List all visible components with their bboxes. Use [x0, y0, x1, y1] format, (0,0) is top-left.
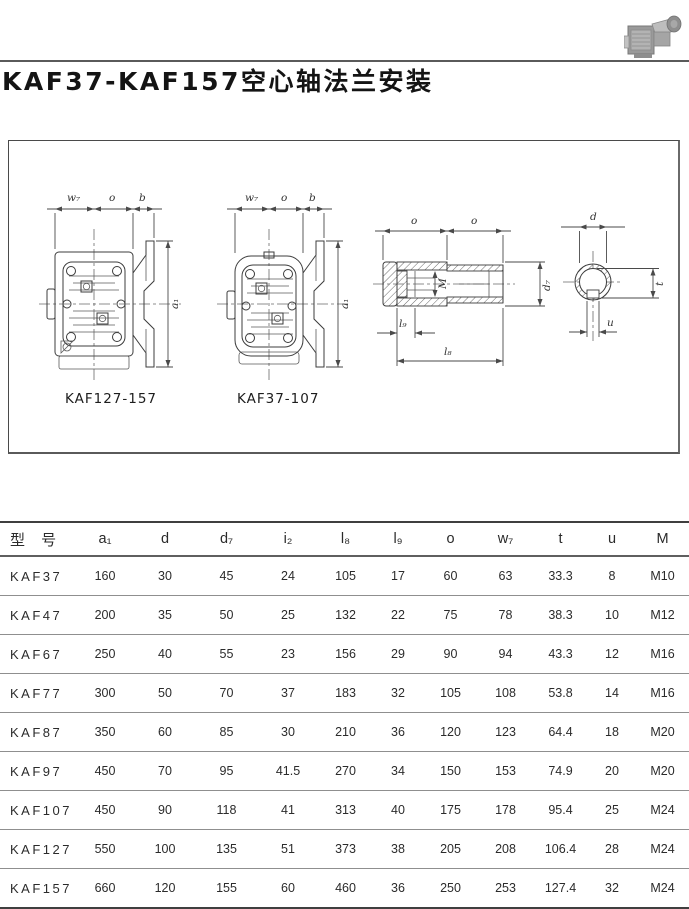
- cell-l9: 36: [373, 869, 423, 909]
- cell-w7: 153: [478, 752, 533, 791]
- cell-o: 60: [423, 556, 478, 596]
- cell-d: 70: [135, 752, 195, 791]
- cell-l8: 373: [318, 830, 373, 869]
- cell-t: 127.4: [533, 869, 588, 909]
- dim-label-o: o: [109, 192, 115, 204]
- table-row: KAF77 300 50 70 37 183 32 105 108 53.8 1…: [0, 674, 689, 713]
- cell-w7: 123: [478, 713, 533, 752]
- dim-label-a1: a₁: [169, 299, 181, 309]
- table-header-row: 型 号 a₁ d d₇ i₂ l₈ l₉ o w₇ t u M: [0, 522, 689, 556]
- cell-u: 25: [588, 791, 636, 830]
- cell-w7: 108: [478, 674, 533, 713]
- cell-u: 12: [588, 635, 636, 674]
- cell-t: 106.4: [533, 830, 588, 869]
- dim-label-l8: l₈: [444, 346, 452, 358]
- column-header-i2: i₂: [258, 522, 318, 556]
- cell-o: 250: [423, 869, 478, 909]
- table-row: KAF127 550 100 135 51 373 38 205 208 106…: [0, 830, 689, 869]
- table-row: KAF87 350 60 85 30 210 36 120 123 64.4 1…: [0, 713, 689, 752]
- cell-a1: 450: [75, 752, 135, 791]
- cell-M: M24: [636, 830, 689, 869]
- cell-w7: 178: [478, 791, 533, 830]
- cell-l8: 156: [318, 635, 373, 674]
- column-header-l8: l₈: [318, 522, 373, 556]
- dim-label-a1: a₁: [339, 299, 351, 309]
- cell-o: 150: [423, 752, 478, 791]
- dim-label-b: b: [139, 192, 146, 204]
- cell-d: 120: [135, 869, 195, 909]
- dim-label-w7: w₇: [67, 192, 81, 204]
- cell-a1: 550: [75, 830, 135, 869]
- caption-right: KAF37-107: [237, 391, 319, 407]
- cell-o: 120: [423, 713, 478, 752]
- cell-d: 60: [135, 713, 195, 752]
- column-header-t: t: [533, 522, 588, 556]
- cell-i2: 41: [258, 791, 318, 830]
- cell-d7: 70: [195, 674, 258, 713]
- cell-a1: 250: [75, 635, 135, 674]
- cell-d: 100: [135, 830, 195, 869]
- table-row: KAF157 660 120 155 60 460 36 250 253 127…: [0, 869, 689, 909]
- drawing-hollow-shaft-section: M o o d₇ l₉ l₈: [373, 215, 553, 366]
- cell-w7: 63: [478, 556, 533, 596]
- cell-a1: 350: [75, 713, 135, 752]
- cell-l9: 40: [373, 791, 423, 830]
- model-cell: KAF97: [0, 752, 75, 791]
- cell-M: M16: [636, 635, 689, 674]
- cell-l8: 210: [318, 713, 373, 752]
- dim-label-l9: l₉: [399, 318, 407, 330]
- dim-label-d7: d₇: [541, 279, 553, 291]
- cell-M: M20: [636, 752, 689, 791]
- model-cell: KAF67: [0, 635, 75, 674]
- cell-l9: 32: [373, 674, 423, 713]
- column-header-w7: w₇: [478, 522, 533, 556]
- cell-t: 38.3: [533, 596, 588, 635]
- cell-d: 90: [135, 791, 195, 830]
- cell-o: 175: [423, 791, 478, 830]
- table-row: KAF47 200 35 50 25 132 22 75 78 38.3 10 …: [0, 596, 689, 635]
- dim-label-o: o: [411, 215, 417, 227]
- cell-M: M24: [636, 869, 689, 909]
- cell-a1: 160: [75, 556, 135, 596]
- cell-d7: 95: [195, 752, 258, 791]
- cell-u: 20: [588, 752, 636, 791]
- drawing-kaf37-107-front-view: w₇ o b a₁ KAF37-107: [217, 192, 351, 407]
- cell-t: 53.8: [533, 674, 588, 713]
- technical-drawing: w₇ o b a₁ KAF127-157: [9, 141, 679, 453]
- cell-i2: 37: [258, 674, 318, 713]
- dim-label-b: b: [309, 192, 316, 204]
- model-cell: KAF107: [0, 791, 75, 830]
- dim-label-M: M: [437, 278, 449, 290]
- table-row: KAF107 450 90 118 41 313 40 175 178 95.4…: [0, 791, 689, 830]
- cell-u: 14: [588, 674, 636, 713]
- table-row: KAF37 160 30 45 24 105 17 60 63 33.3 8 M…: [0, 556, 689, 596]
- cell-l8: 460: [318, 869, 373, 909]
- column-header-o: o: [423, 522, 478, 556]
- cell-l8: 132: [318, 596, 373, 635]
- cell-t: 95.4: [533, 791, 588, 830]
- cell-u: 18: [588, 713, 636, 752]
- cell-i2: 24: [258, 556, 318, 596]
- dim-label-u: u: [607, 317, 614, 329]
- diagram-panel: w₇ o b a₁ KAF127-157: [8, 140, 680, 454]
- cell-d7: 155: [195, 869, 258, 909]
- cell-l8: 105: [318, 556, 373, 596]
- cell-M: M12: [636, 596, 689, 635]
- cell-t: 74.9: [533, 752, 588, 791]
- cell-M: M20: [636, 713, 689, 752]
- cell-i2: 41.5: [258, 752, 318, 791]
- cell-i2: 25: [258, 596, 318, 635]
- cell-o: 105: [423, 674, 478, 713]
- dim-label-t: t: [654, 281, 666, 286]
- model-cell: KAF77: [0, 674, 75, 713]
- cell-l8: 270: [318, 752, 373, 791]
- cell-l9: 17: [373, 556, 423, 596]
- cell-u: 32: [588, 869, 636, 909]
- drawing-kaf127-157-front-view: w₇ o b a₁ KAF127-157: [39, 192, 181, 407]
- cell-l9: 22: [373, 596, 423, 635]
- catalog-page: { "title": "KAF37-KAF157空心轴法兰安装", "diagr…: [0, 0, 689, 899]
- cell-d7: 118: [195, 791, 258, 830]
- column-header-d7: d₇: [195, 522, 258, 556]
- cell-l9: 38: [373, 830, 423, 869]
- cell-u: 8: [588, 556, 636, 596]
- cell-u: 28: [588, 830, 636, 869]
- cell-d7: 85: [195, 713, 258, 752]
- cell-M: M16: [636, 674, 689, 713]
- dim-label-o: o: [471, 215, 477, 227]
- table-row: KAF67 250 40 55 23 156 29 90 94 43.3 12 …: [0, 635, 689, 674]
- model-cell: KAF47: [0, 596, 75, 635]
- column-header-u: u: [588, 522, 636, 556]
- column-header-a1: a₁: [75, 522, 135, 556]
- cell-d: 30: [135, 556, 195, 596]
- cell-w7: 94: [478, 635, 533, 674]
- cell-a1: 300: [75, 674, 135, 713]
- cell-d: 35: [135, 596, 195, 635]
- drawing-bore-cross-section: d t u: [561, 211, 666, 341]
- cell-w7: 253: [478, 869, 533, 909]
- table-row: KAF97 450 70 95 41.5 270 34 150 153 74.9…: [0, 752, 689, 791]
- model-cell: KAF157: [0, 869, 75, 909]
- cell-d7: 45: [195, 556, 258, 596]
- dim-label-w7: w₇: [245, 192, 259, 204]
- dim-label-o: o: [281, 192, 287, 204]
- cell-M: M10: [636, 556, 689, 596]
- cell-l9: 34: [373, 752, 423, 791]
- cell-d7: 135: [195, 830, 258, 869]
- cell-u: 10: [588, 596, 636, 635]
- cell-d7: 50: [195, 596, 258, 635]
- model-cell: KAF37: [0, 556, 75, 596]
- model-cell: KAF87: [0, 713, 75, 752]
- column-header-M: M: [636, 522, 689, 556]
- cell-d: 50: [135, 674, 195, 713]
- cell-i2: 23: [258, 635, 318, 674]
- dim-label-d: d: [590, 211, 597, 223]
- cell-i2: 51: [258, 830, 318, 869]
- cell-o: 205: [423, 830, 478, 869]
- cell-d: 40: [135, 635, 195, 674]
- column-header-l9: l₉: [373, 522, 423, 556]
- column-header-model: 型 号: [0, 522, 75, 556]
- cell-a1: 200: [75, 596, 135, 635]
- cell-l8: 183: [318, 674, 373, 713]
- cell-w7: 78: [478, 596, 533, 635]
- spec-table: 型 号 a₁ d d₇ i₂ l₈ l₉ o w₇ t u M KAF37 16…: [0, 521, 689, 909]
- cell-t: 64.4: [533, 713, 588, 752]
- cell-l9: 36: [373, 713, 423, 752]
- cell-l9: 29: [373, 635, 423, 674]
- page-title: KAF37-KAF157空心轴法兰安装: [2, 62, 433, 98]
- model-cell: KAF127: [0, 830, 75, 869]
- column-header-d: d: [135, 522, 195, 556]
- cell-l8: 313: [318, 791, 373, 830]
- cell-a1: 450: [75, 791, 135, 830]
- cell-d7: 55: [195, 635, 258, 674]
- cell-w7: 208: [478, 830, 533, 869]
- cell-o: 90: [423, 635, 478, 674]
- cell-M: M24: [636, 791, 689, 830]
- cell-t: 43.3: [533, 635, 588, 674]
- cell-o: 75: [423, 596, 478, 635]
- cell-i2: 60: [258, 869, 318, 909]
- cell-a1: 660: [75, 869, 135, 909]
- cell-t: 33.3: [533, 556, 588, 596]
- caption-left: KAF127-157: [65, 391, 157, 407]
- cell-i2: 30: [258, 713, 318, 752]
